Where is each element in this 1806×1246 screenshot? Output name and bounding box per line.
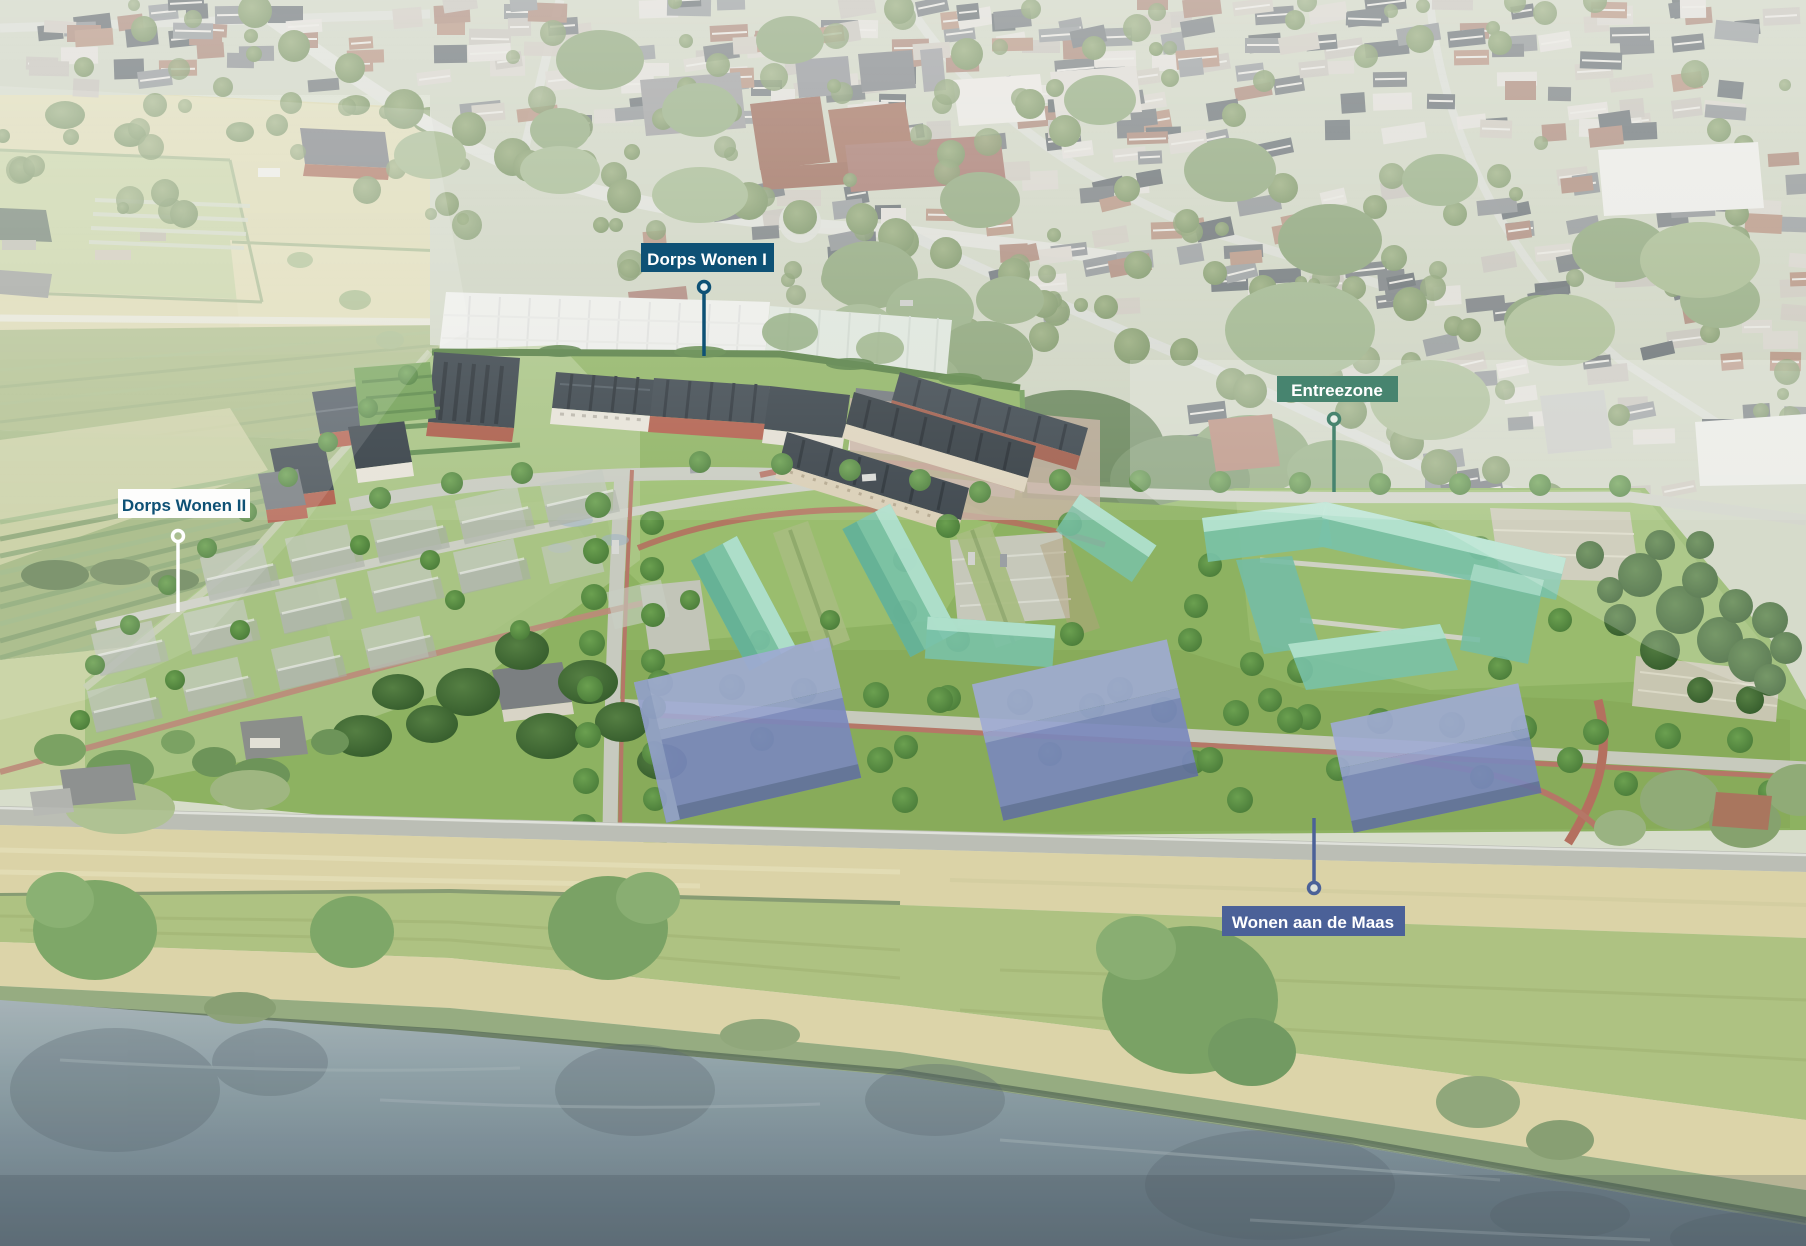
svg-text:Entreezone: Entreezone [1291, 381, 1383, 400]
svg-text:Dorps Wonen I: Dorps Wonen I [647, 250, 767, 269]
svg-text:Wonen aan de Maas: Wonen aan de Maas [1232, 913, 1394, 932]
svg-text:Dorps Wonen II: Dorps Wonen II [122, 496, 246, 515]
